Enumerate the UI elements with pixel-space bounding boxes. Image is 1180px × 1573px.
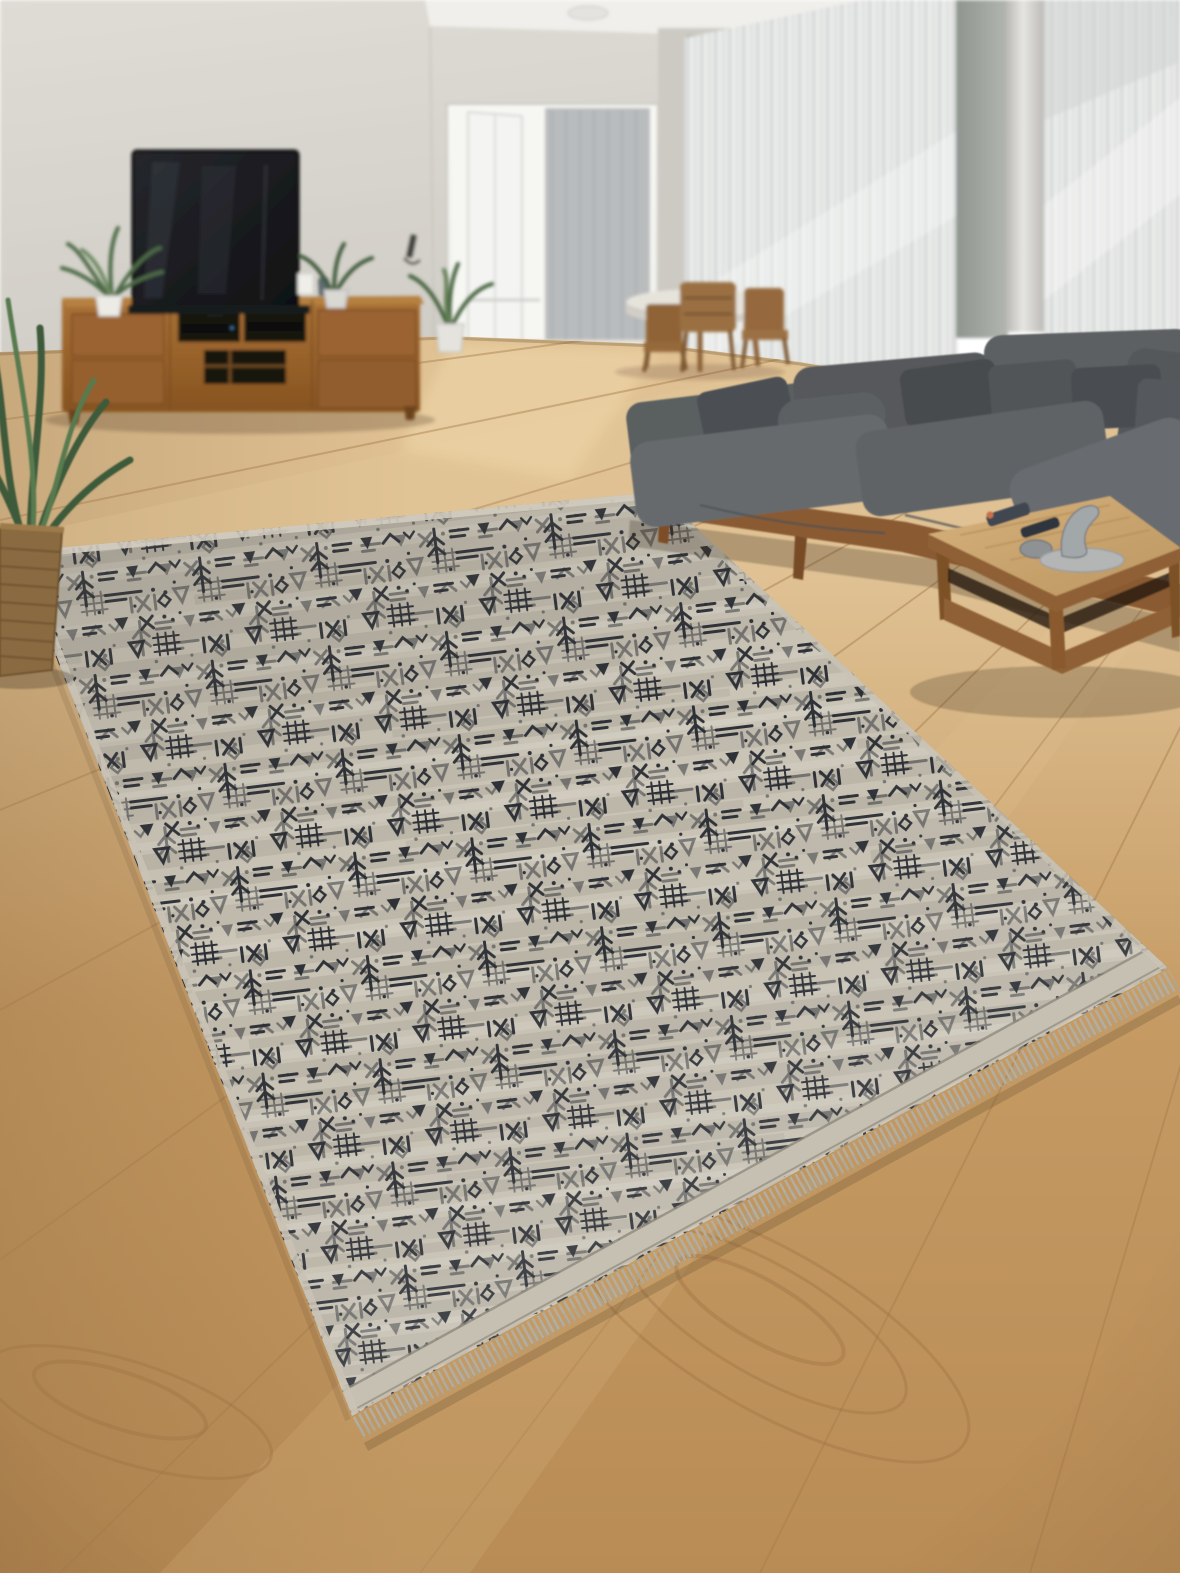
vignette: [0, 0, 1180, 1573]
scene-canvas: [0, 0, 1180, 1573]
living-room-photo: [0, 0, 1180, 1573]
